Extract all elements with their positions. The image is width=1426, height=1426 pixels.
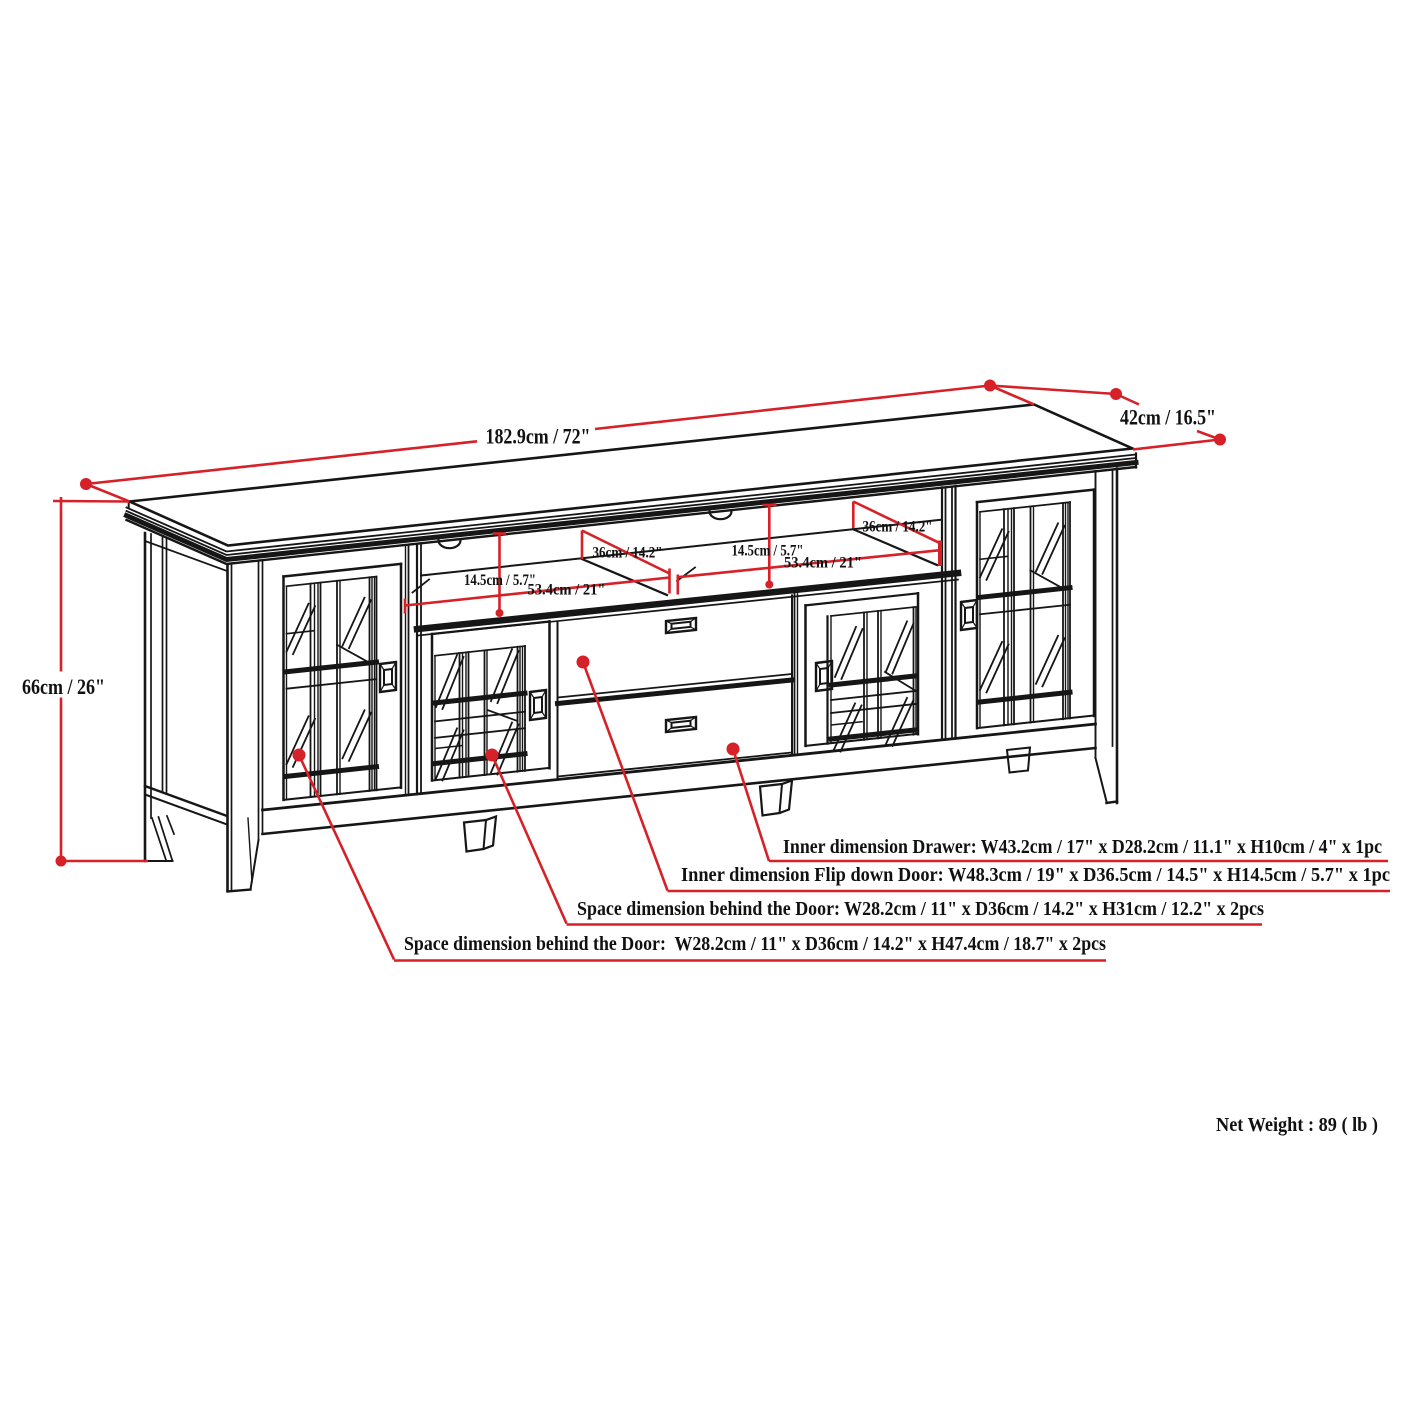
svg-text:Space dimension behind the Doo: Space dimension behind the Door: W28.2cm… [577,899,1264,920]
svg-text:53.4cm / 21": 53.4cm / 21" [784,555,862,572]
svg-text:66cm / 26": 66cm / 26" [22,674,105,699]
svg-text:36cm / 14.2": 36cm / 14.2" [863,519,933,536]
svg-text:Inner dimension Flip down Door: Inner dimension Flip down Door: W48.3cm … [681,865,1390,886]
svg-text:36cm / 14.2": 36cm / 14.2" [593,545,663,562]
svg-text:182.9cm / 72": 182.9cm / 72" [486,424,591,449]
svg-text:Inner dimension Drawer: W43.2c: Inner dimension Drawer: W43.2cm / 17" x … [783,837,1382,858]
svg-text:42cm / 16.5": 42cm / 16.5" [1120,405,1216,430]
svg-text:Space dimension behind the Doo: Space dimension behind the Door: W28.2cm… [404,934,1106,955]
svg-text:14.5cm / 5.7": 14.5cm / 5.7" [464,572,536,589]
svg-text:Net Weight : 89 ( lb ): Net Weight : 89 ( lb ) [1216,1114,1378,1136]
svg-text:53.4cm / 21": 53.4cm / 21" [528,582,606,599]
